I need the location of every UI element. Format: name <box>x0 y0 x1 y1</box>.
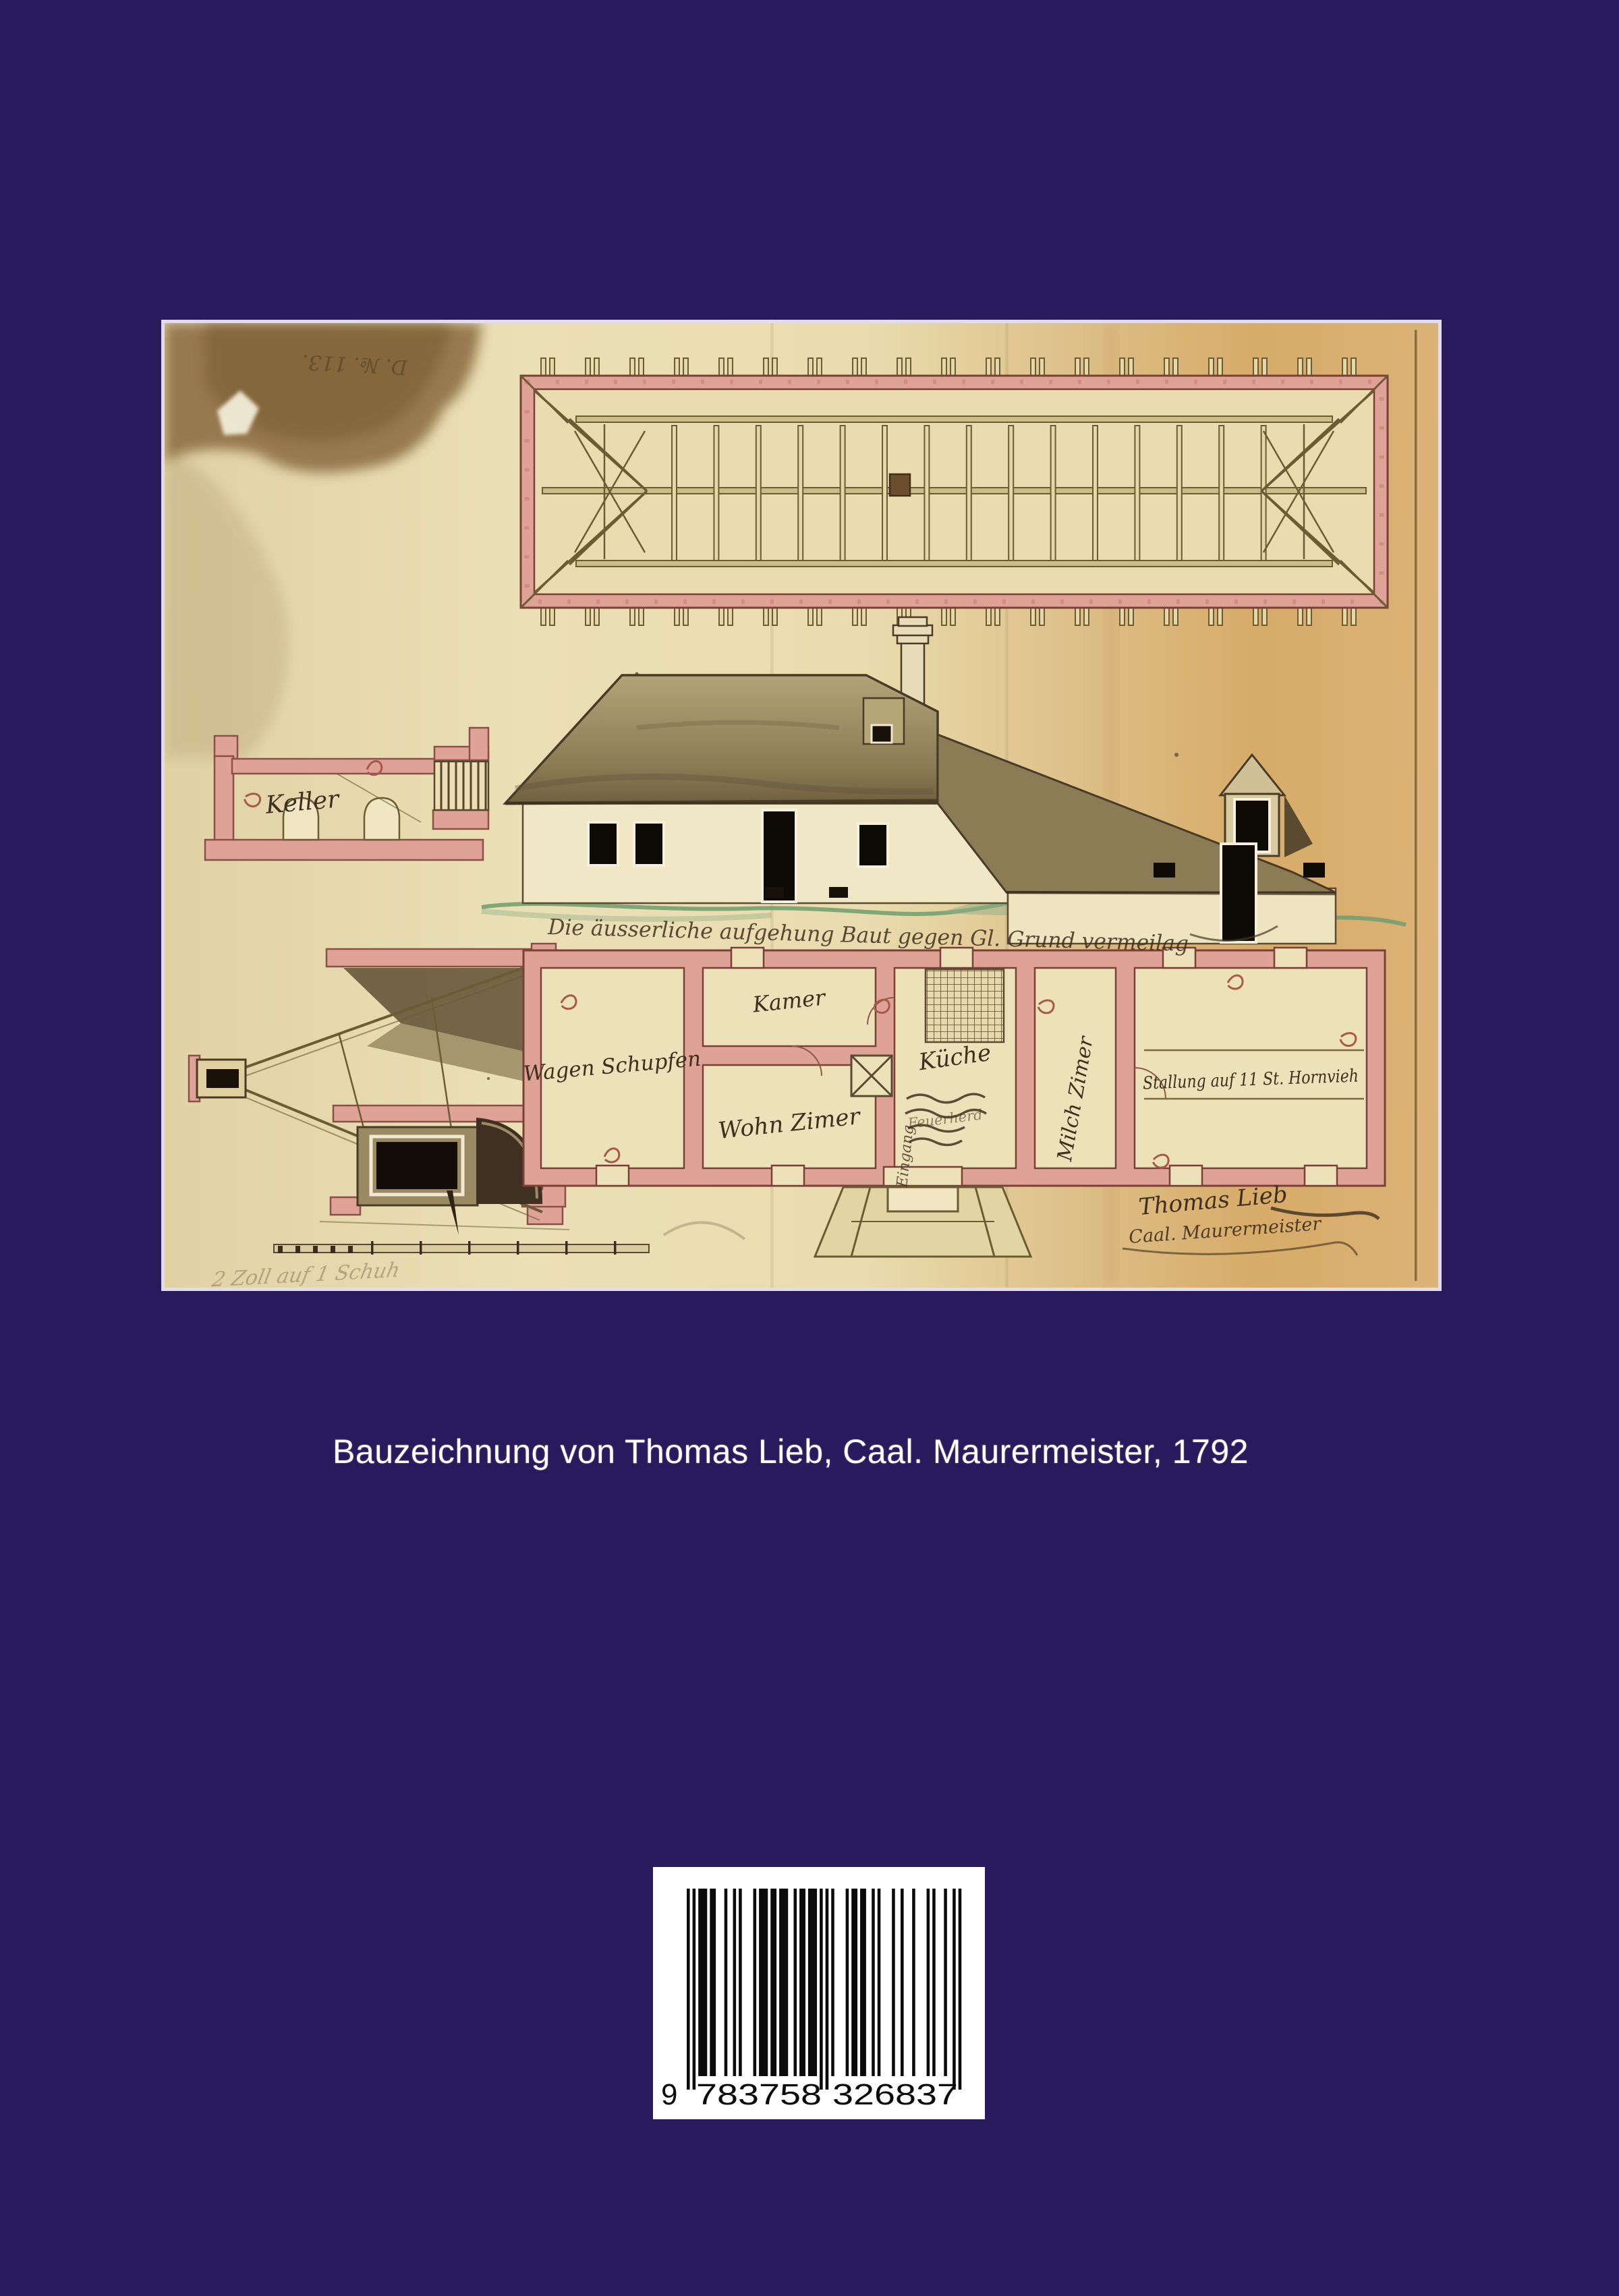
oven-box <box>851 1056 892 1096</box>
architectural-drawing-photo: D. №. 113. <box>161 320 1442 1291</box>
roof-truss-plan <box>521 358 1388 625</box>
barcode-digits-right: 326837 <box>832 2078 958 2111</box>
roof-hatch <box>863 698 904 744</box>
barcode-bars <box>687 1889 961 2090</box>
barcode-digits-left: 783758 <box>696 2078 822 2111</box>
rafter-beams <box>672 426 1266 561</box>
kitchen-hearth-hatch <box>926 969 1004 1042</box>
book-back-cover: { "theme": { "page_bg": "#281a5c", "phot… <box>0 0 1619 2296</box>
truss-center-block <box>890 474 910 496</box>
entry-porch <box>815 1187 1031 1257</box>
cellar-stairs <box>434 762 488 810</box>
paper-edge-line <box>1415 330 1417 1281</box>
barcode-digit-leading: 9 <box>661 2078 677 2111</box>
isbn-barcode: 9 783758 326837 <box>653 1867 985 2119</box>
caption: Bauzeichnung von Thomas Lieb, Caal. Maur… <box>0 1431 1581 1472</box>
